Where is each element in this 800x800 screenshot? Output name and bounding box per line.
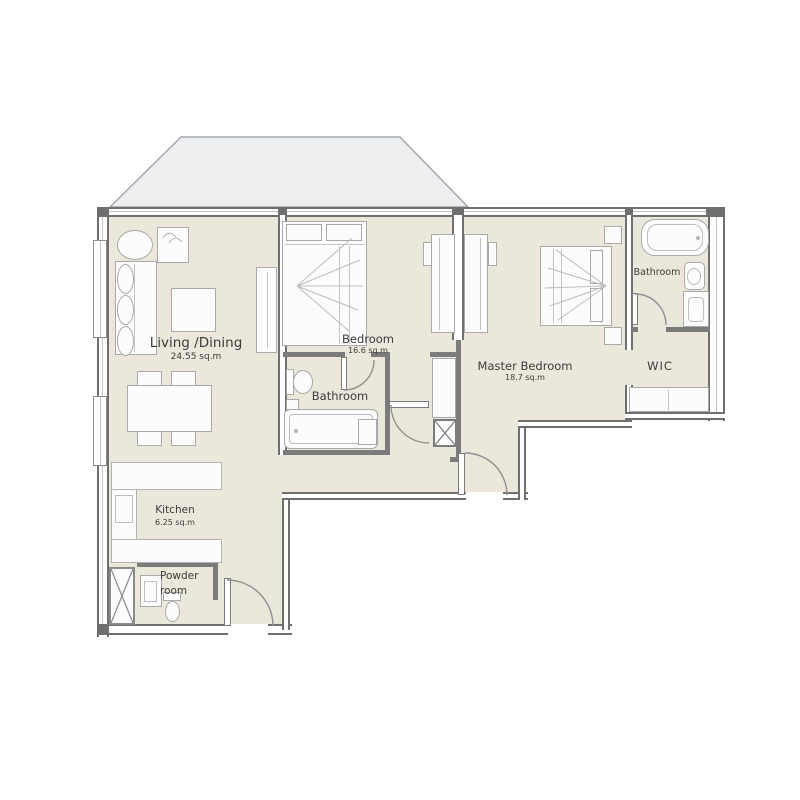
- door-leaf-master: [458, 453, 465, 495]
- wall-junction: [97, 624, 109, 635]
- dining-chair: [171, 431, 196, 446]
- window-living: [93, 240, 107, 338]
- dining-chair: [137, 371, 162, 386]
- door-leaf-bathroom1: [632, 293, 638, 325]
- wardrobe: [464, 234, 488, 333]
- kitchen-counter-bottom: [111, 539, 222, 563]
- room-label-kitchen: Kitchen 6.25 sq.m: [155, 503, 195, 528]
- wall-bath-bottom: [283, 450, 390, 455]
- floor-plan: Living /Dining 24.55 sq.m Bedroom 16.6 s…: [0, 0, 800, 800]
- pillow: [286, 224, 322, 241]
- wall-exterior-bottom: [97, 624, 228, 635]
- room-label-bedroom: Bedroom 16.6 sq.m: [342, 333, 394, 356]
- terrace-outline: [110, 137, 468, 207]
- dining-table: [127, 385, 212, 432]
- wic-wardrobe: [629, 387, 709, 412]
- window-glazing-top: [109, 211, 709, 212]
- room-label-living: Living /Dining 24.55 sq.m: [150, 336, 243, 363]
- wall-junction: [706, 207, 725, 217]
- hall-closet: [432, 358, 456, 418]
- wall-step-vertical: [518, 424, 526, 500]
- bathtub: [641, 219, 709, 256]
- wall-hall-bottom: [282, 492, 466, 500]
- tv-unit: [256, 267, 277, 353]
- wall-kitchen-entry: [282, 498, 290, 630]
- room-name: Bedroom: [342, 333, 394, 346]
- room-label-bathroom2: Bathroom: [312, 390, 368, 403]
- sofa-cushion: [117, 264, 134, 294]
- room-area: 18.7 sq.m: [478, 373, 573, 383]
- room-name: room: [160, 584, 198, 599]
- room-name: Bathroom: [312, 390, 368, 403]
- room-name: Living /Dining: [150, 336, 243, 351]
- wardrobe: [431, 234, 455, 333]
- room-label-bathroom1: Bathroom: [634, 267, 681, 278]
- nightstand: [604, 226, 622, 244]
- sofa-cushion: [117, 326, 134, 356]
- wall-bath-wic: [666, 327, 710, 332]
- nightstand: [604, 327, 622, 345]
- door-leaf-closet: [389, 401, 429, 408]
- room-area: 16.6 sq.m: [342, 346, 394, 356]
- sink-vanity: [683, 291, 709, 327]
- room-area: 6.25 sq.m: [155, 518, 195, 528]
- kitchen-counter-top: [111, 462, 222, 490]
- room-label-wic: WIC: [647, 360, 673, 373]
- wall-powder-right: [213, 567, 218, 600]
- wall-wic-bottom: [625, 412, 725, 420]
- toilet: [684, 262, 705, 290]
- wall-closet-top: [430, 352, 456, 357]
- wall-master-bottom: [518, 420, 632, 428]
- window-glazing-right: [716, 217, 717, 413]
- dining-chair: [137, 431, 162, 446]
- coffee-table: [171, 288, 216, 332]
- armchair: [157, 227, 189, 263]
- door-leaf-entry: [224, 578, 231, 626]
- room-name: Master Bedroom: [478, 360, 573, 373]
- dining-chair: [171, 371, 196, 386]
- sofa-cushion: [117, 295, 134, 325]
- window-dining: [93, 396, 107, 466]
- room-area: 24.55 sq.m: [150, 351, 243, 363]
- toilet-bowl: [165, 601, 180, 622]
- room-name: Kitchen: [155, 503, 195, 518]
- shaft-box: [433, 419, 457, 447]
- wall-bedroom-bath: [283, 352, 345, 357]
- room-name: Powder: [160, 569, 198, 584]
- pillow: [590, 250, 603, 284]
- toilet-bowl: [293, 370, 313, 394]
- pillow: [326, 224, 362, 241]
- wall-junction: [97, 207, 109, 217]
- bath-sink: [358, 419, 377, 445]
- wall-bath-wic: [632, 327, 638, 332]
- side-table-round: [117, 230, 153, 260]
- powder-sink: [140, 575, 162, 607]
- wardrobe-side: [488, 242, 497, 266]
- room-label-master: Master Bedroom 18.7 sq.m: [478, 360, 573, 383]
- pillow: [590, 288, 603, 322]
- door-leaf-bathroom2: [341, 357, 347, 390]
- laundry-shaft-box: [109, 567, 135, 625]
- room-label-powder: Powder room: [160, 569, 198, 599]
- room-name: WIC: [647, 360, 673, 373]
- room-name: Bathroom: [634, 267, 681, 278]
